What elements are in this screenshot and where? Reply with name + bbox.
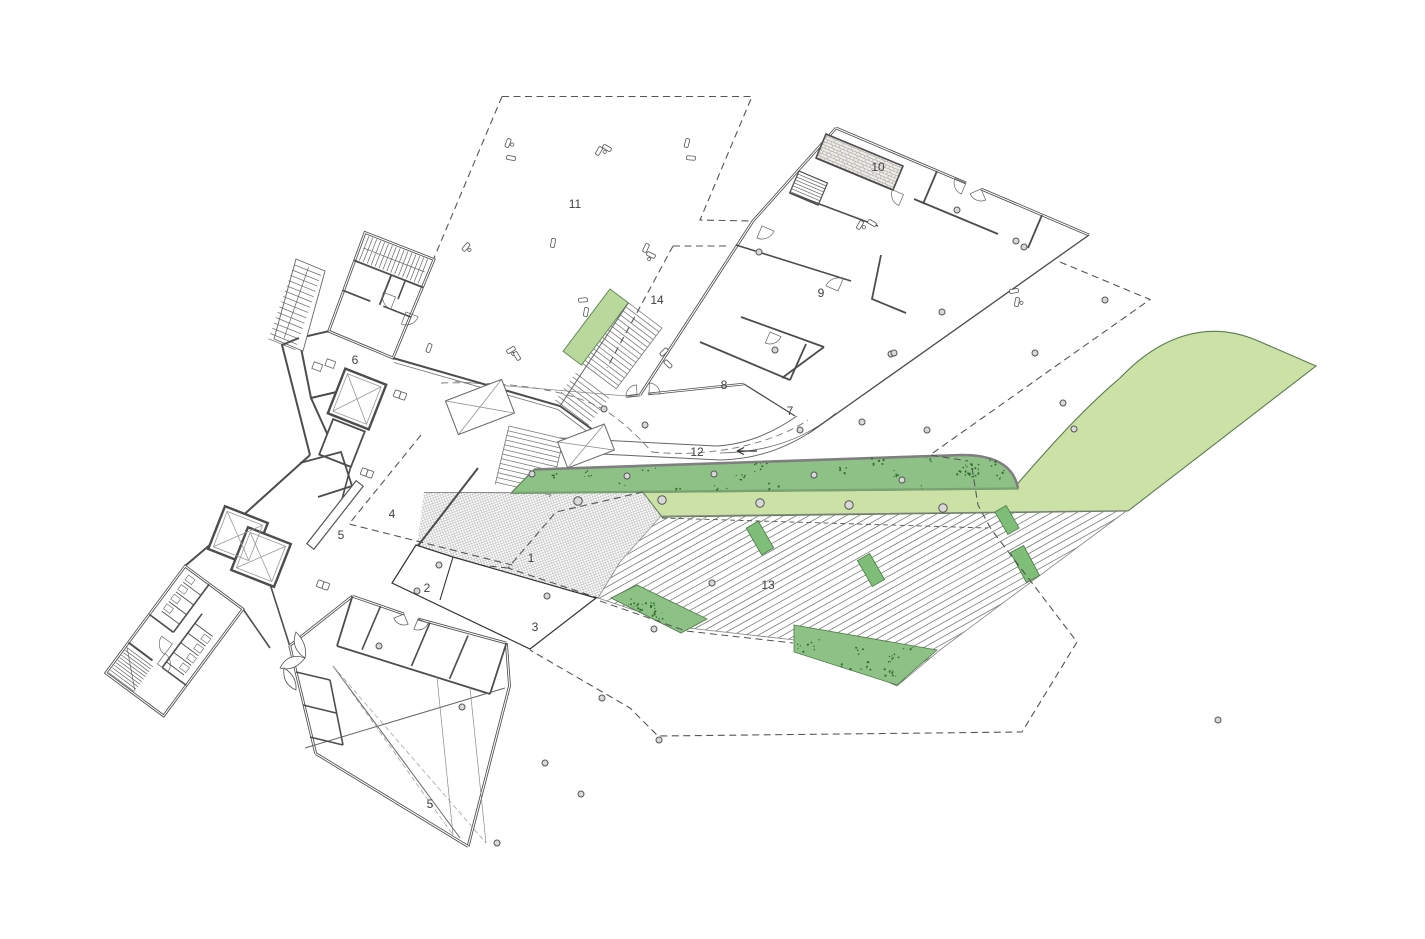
svg-text:8: 8	[721, 378, 728, 392]
svg-text:13: 13	[761, 578, 775, 592]
svg-text:5: 5	[427, 797, 434, 811]
svg-text:14: 14	[650, 293, 664, 307]
svg-text:11: 11	[569, 197, 582, 211]
svg-text:5: 5	[338, 528, 345, 542]
svg-text:9: 9	[818, 286, 825, 300]
svg-text:12: 12	[690, 445, 704, 459]
svg-text:6: 6	[352, 353, 359, 367]
svg-text:10: 10	[871, 160, 885, 174]
svg-text:2: 2	[424, 581, 431, 595]
svg-text:7: 7	[787, 404, 794, 418]
svg-text:4: 4	[389, 507, 396, 521]
svg-text:3: 3	[532, 620, 539, 634]
svg-text:1: 1	[528, 551, 535, 565]
